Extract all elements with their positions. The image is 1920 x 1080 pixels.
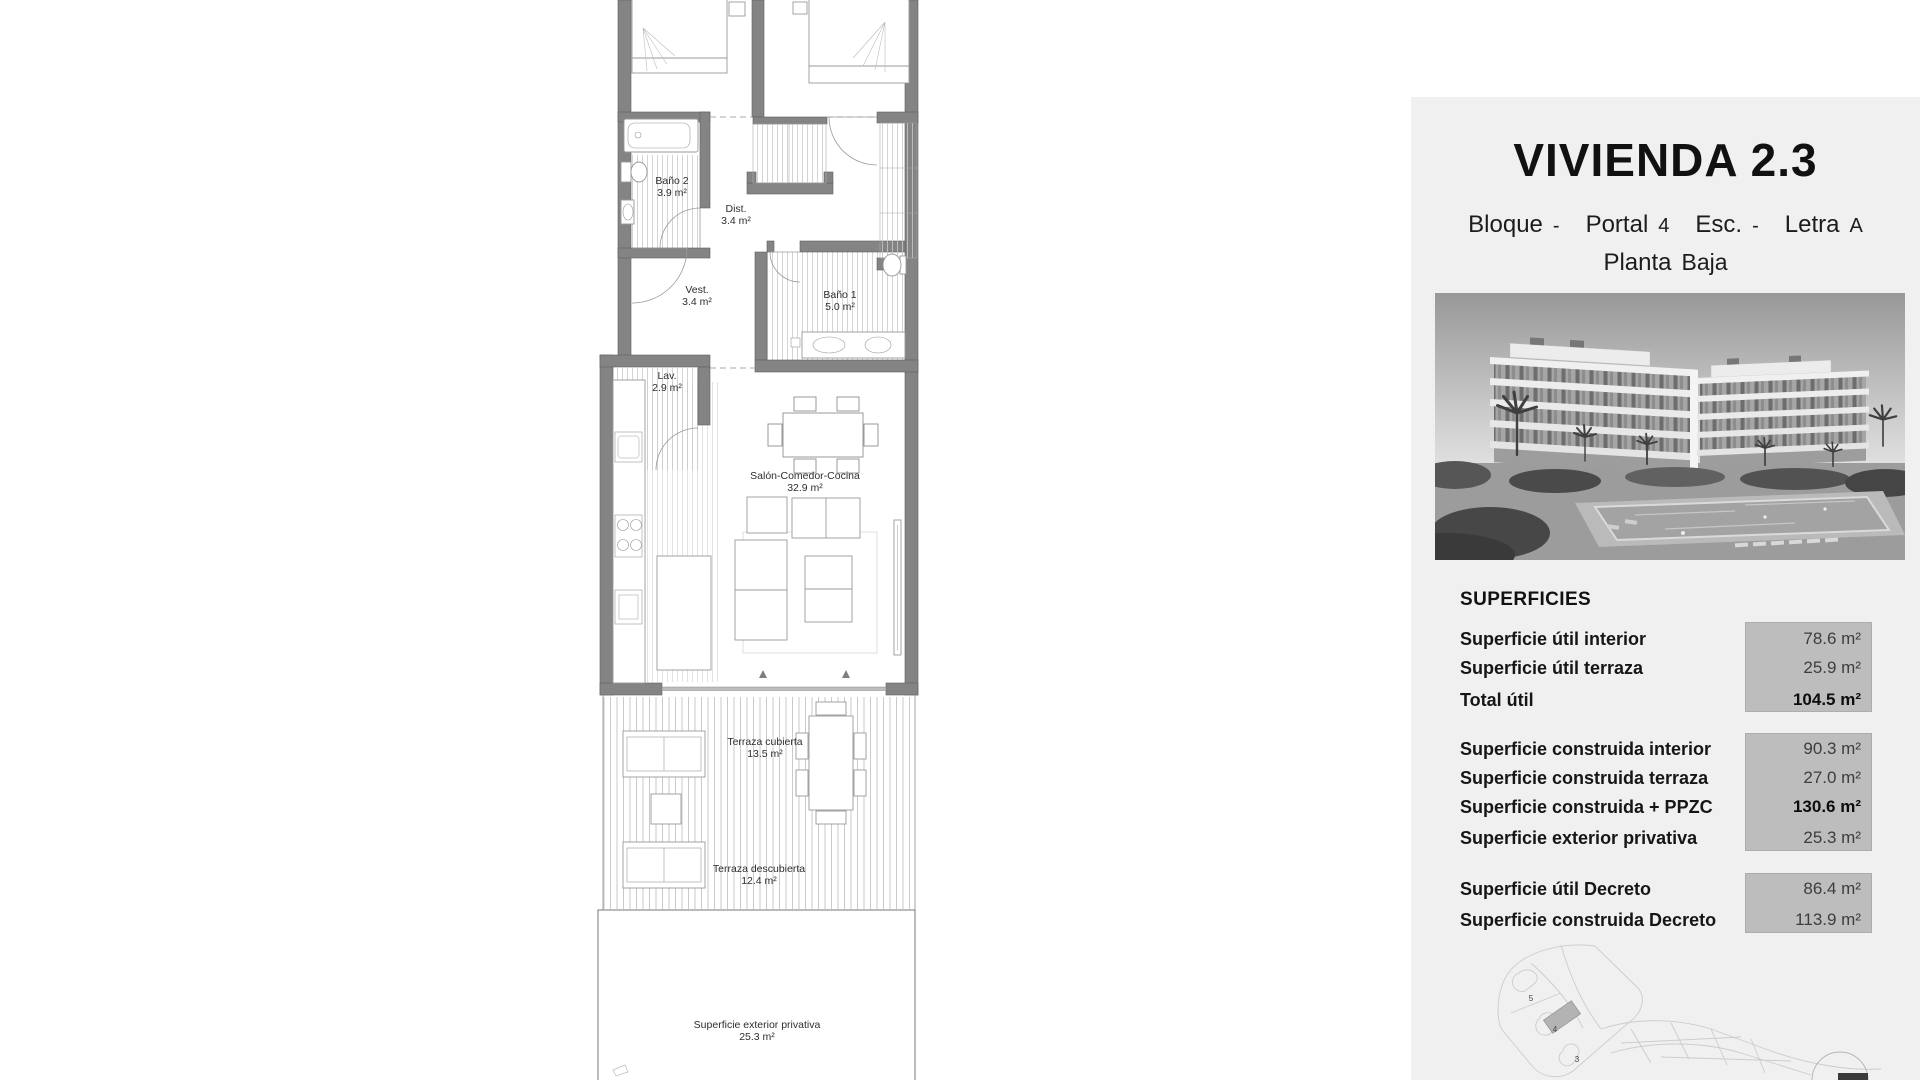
row-value: 25.9 m² [1745,656,1872,680]
info-panel: VIVIENDA 2.3 Bloque - Portal 4 Esc. - Le… [1411,97,1920,1080]
site-plan: 5 4 3 [1411,933,1920,1080]
room-label-dist: Dist. [726,203,747,215]
row-label: Total útil [1460,688,1534,712]
bloque-label: Bloque [1468,211,1543,239]
room-label-bano1: Baño 1 [823,289,856,301]
highlighted-block [1543,1001,1580,1034]
private-exterior-area [598,910,915,1080]
row-value: 25.3 m² [1745,826,1872,850]
row-value: 104.5 m² [1745,688,1872,712]
location-portal: Portal 4 [1586,211,1670,239]
room-area-bano1: 5.0 m² [825,301,855,313]
location-bloque: Bloque - [1468,211,1559,239]
letra-label: Letra [1785,211,1840,239]
room-area-dist: 3.4 m² [721,215,751,227]
terrace-sliding-door [662,687,886,691]
location-esc: Esc. - [1695,211,1758,239]
letra-value: A [1849,215,1862,238]
unit-location: Bloque - Portal 4 Esc. - Letra A [1411,211,1920,239]
bloque-value: - [1553,215,1560,238]
room-area-exterior-privativa: 25.3 m² [739,1031,775,1043]
row-label: Superficie construida + PPZC [1460,795,1713,819]
page: Baño 2 3.9 m² Dist. 3.4 m² Vest. 3.4 m² … [0,0,1920,1080]
esc-label: Esc. [1695,211,1742,239]
unit-floor: Planta Baja [1411,249,1920,277]
row-value: 86.4 m² [1745,877,1872,901]
row-label: Superficie construida terraza [1460,766,1708,790]
room-label-terraza-descubierta: Terraza descubierta [713,863,805,875]
planta-label: Planta [1603,249,1671,277]
portal-label: Portal [1586,211,1649,239]
room-area-bano2: 3.9 m² [657,187,687,199]
room-label-bano2: Baño 2 [655,175,688,187]
room-label-salon: Salón-Comedor-Cocina [750,470,860,482]
table-row: Superficie útil terraza 25.9 m² [1460,656,1872,680]
room-label-lav: Lav. [657,370,676,382]
superficies-heading: SUPERFICIES [1460,589,1591,611]
floor-plan: Baño 2 3.9 m² Dist. 3.4 m² Vest. 3.4 m² … [597,0,942,1080]
row-value: 113.9 m² [1745,908,1872,932]
room-area-lav: 2.9 m² [652,382,682,394]
site-block-label-4: 4 [1553,1025,1558,1034]
row-label: Superficie exterior privativa [1460,826,1697,850]
portal-value: 4 [1658,215,1669,238]
superficies-group-decreto: Superficie útil Decreto 86.4 m² Superfic… [1460,873,1872,933]
room-area-terraza-cubierta: 13.5 m² [747,748,783,760]
row-label: Superficie útil interior [1460,627,1646,651]
site-block-label-5: 5 [1529,994,1534,1003]
table-row: Superficie exterior privativa 25.3 m² [1460,826,1872,850]
dining-set [768,397,878,473]
table-row: Superficie construida Decreto 113.9 m² [1460,908,1872,932]
row-value: 130.6 m² [1745,795,1872,819]
living-furniture [735,497,901,655]
room-area-terraza-descubierta: 12.4 m² [741,875,777,887]
door-arrows [759,670,850,678]
row-value: 78.6 m² [1745,627,1872,651]
site-block-label-3: 3 [1575,1055,1580,1064]
floor-plan-drawing: Baño 2 3.9 m² Dist. 3.4 m² Vest. 3.4 m² … [597,0,942,1080]
room-area-salon: 32.9 m² [787,482,823,494]
room-label-vest: Vest. [685,284,708,296]
row-label: Superficie útil terraza [1460,656,1643,680]
building-render-image [1435,293,1905,560]
planta-value: Baja [1682,249,1728,276]
unit-title: VIVIENDA 2.3 [1411,133,1920,187]
esc-value: - [1752,215,1759,238]
superficies-group-construida: Superficie construida interior 90.3 m² S… [1460,733,1872,851]
table-row: Superficie útil Decreto 86.4 m² [1460,877,1872,901]
table-row-total: Total útil 104.5 m² [1460,688,1872,712]
table-row: Superficie útil interior 78.6 m² [1460,627,1872,651]
row-value: 27.0 m² [1745,766,1872,790]
row-label: Superficie construida Decreto [1460,908,1716,932]
row-value: 90.3 m² [1745,737,1872,761]
room-label-exterior-privativa: Superficie exterior privativa [694,1019,821,1031]
location-letra: Letra A [1785,211,1863,239]
compass-icon [1812,1052,1868,1080]
table-row-total: Superficie construida + PPZC 130.6 m² [1460,795,1872,819]
room-label-terraza-cubierta: Terraza cubierta [727,736,802,748]
row-label: Superficie construida interior [1460,737,1711,761]
table-row: Superficie construida terraza 27.0 m² [1460,766,1872,790]
superficies-group-util: Superficie útil interior 78.6 m² Superfi… [1460,622,1872,712]
row-label: Superficie útil Decreto [1460,877,1651,901]
table-row: Superficie construida interior 90.3 m² [1460,737,1872,761]
room-area-vest: 3.4 m² [682,296,712,308]
